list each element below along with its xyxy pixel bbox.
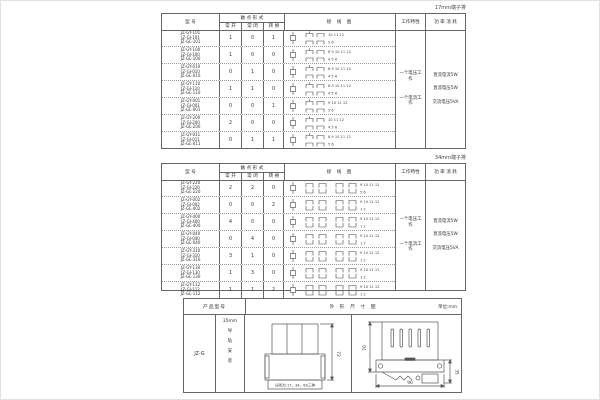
svg-text:9 10 11 12: 9 10 11 12 xyxy=(360,217,379,221)
model-number: JZ-GL-101 xyxy=(181,40,201,45)
rail-hook-box xyxy=(422,374,438,383)
normally-closed-count: 1 xyxy=(242,282,264,298)
power-note-dc-voltage: 直流电压5W xyxy=(427,232,465,237)
svg-text:8 9 10 11 12: 8 9 10 11 12 xyxy=(328,84,351,88)
model-number: JZ-GL-002 xyxy=(181,207,201,212)
svg-text:1 2: 1 2 xyxy=(360,208,366,212)
normally-open-count: 4 xyxy=(220,214,242,230)
col-header-changeover: 转 换 xyxy=(264,23,284,31)
wiring-diagram-cell: 9 10 11 121 2 xyxy=(284,282,395,298)
svg-text:8 9 10 11 12: 8 9 10 11 12 xyxy=(328,67,351,71)
wiring-diagram-svg: 8 9 10 11 124 5 6 xyxy=(286,64,394,80)
table-row: JZ-GY-310JZ-GJ-310JZ-GL-3103109 10 11 12… xyxy=(162,247,395,264)
col-header-model: 型 号 xyxy=(162,14,220,30)
svg-text:5 6: 5 6 xyxy=(328,41,334,45)
svg-text:1 2: 1 2 xyxy=(360,259,366,263)
changeover-count: 0 xyxy=(264,231,284,247)
table-row: JZ-GY-100JZ-GJ-100JZ-GL-1001008 9 10 11 … xyxy=(162,46,395,63)
side-depth-dim-label: 90 xyxy=(407,380,413,386)
power-note-dc-voltage: 直流电压5W xyxy=(427,86,465,91)
model-cell: JZ-GY-001JZ-GJ-001JZ-GL-001 xyxy=(162,98,220,114)
mounting-type-cell: 35mm导轨安装 xyxy=(216,315,245,393)
table-row: JZ-GY-220JZ-GJ-220JZ-GL-2202209 10 11 12… xyxy=(162,180,395,196)
col-header-changeover: 转 换 xyxy=(264,173,284,181)
wiring-diagram-cell: 9 10 11 121 2 xyxy=(284,248,395,264)
side-view-drawing: 70 90 35 xyxy=(352,315,461,393)
changeover-count: 0 xyxy=(264,214,284,230)
model-number: JZ-GL-100 xyxy=(181,57,201,62)
table-header: 型 号 触 点 形 式 常 开 常 闭 转 换 接 线 图 工作特性 功 率 消… xyxy=(162,164,465,181)
col-header-work-characteristic: 工作特性 xyxy=(396,164,426,180)
normally-closed-count: 1 xyxy=(242,248,264,264)
table-row: JZ-GY-400JZ-GJ-400JZ-GL-4004009 10 11 12… xyxy=(162,213,395,230)
normally-closed-count: 0 xyxy=(242,98,264,114)
model-number: JZ-GL-220 xyxy=(181,190,201,195)
table-body: JZ-GY-220JZ-GJ-220JZ-GL-2202209 10 11 12… xyxy=(162,180,395,290)
normally-open-count: 0 xyxy=(220,64,242,80)
power-consumption-cell: 直流电流5W 直流电压5W 交流电压5VA xyxy=(425,180,465,290)
normally-closed-count: 0 xyxy=(242,115,264,131)
svg-text:9 10 11 12: 9 10 11 12 xyxy=(360,285,379,289)
model-number: JZ-GL-001 xyxy=(181,108,201,113)
normally-open-count: 0 xyxy=(220,98,242,114)
col-header-contact-form: 触 点 形 式 xyxy=(220,14,284,23)
model-number: JZ-GL-040 xyxy=(181,241,201,246)
model-number: JZ-GL-400 xyxy=(181,224,201,229)
changeover-count: 0 xyxy=(264,81,284,97)
wiring-diagram-svg: 8 9 10 11 125 6 xyxy=(286,132,394,148)
normally-closed-count: 2 xyxy=(242,180,264,196)
wiring-diagram-cell: 8 9 10 11 124 5 6 xyxy=(284,81,395,97)
wiring-diagram-cell: 10 11 124 5 6 xyxy=(284,115,395,131)
wiring-diagram-svg: 9 10 11 121 2 xyxy=(286,214,394,230)
work-characteristic-cell: 一个电压工作 一个电流工作 xyxy=(395,30,425,148)
side-rail-dim-label: 35 xyxy=(455,369,460,375)
wiring-diagram-svg: 9 10 11 121 2 xyxy=(286,248,394,264)
model-number: JZ-GL-130 xyxy=(181,275,201,280)
model-cell: JZ-GY-310JZ-GJ-310JZ-GL-310 xyxy=(162,248,220,264)
model-cell: JZ-GY-110JZ-GJ-110JZ-GL-110 xyxy=(162,81,220,97)
model-cell: JZ-GY-040JZ-GJ-040JZ-GL-040 xyxy=(162,231,220,247)
svg-text:9 10 11 12: 9 10 11 12 xyxy=(360,200,379,204)
normally-closed-count: 0 xyxy=(242,47,264,63)
model-number: JZ-GL-310 xyxy=(181,258,201,263)
changeover-count: 0 xyxy=(264,248,284,264)
wiring-diagram-cell: 9 10 11 121 2 xyxy=(284,197,395,213)
svg-text:9 10 11 12: 9 10 11 12 xyxy=(360,183,379,187)
col-header-product-model: 产品型号 xyxy=(184,299,246,314)
spec-table-34mm: 型 号 触 点 形 式 常 开 常 闭 转 换 接 线 图 工作特性 功 率 消… xyxy=(161,163,466,291)
table-body: JZ-GY-101JZ-GJ-101JZ-GL-10110110 11 125 … xyxy=(162,30,395,148)
wiring-diagram-svg: 10 11 124 5 6 xyxy=(286,115,394,131)
power-consumption-cell: 直流电流5W 直流电压5W 交流电压5VA xyxy=(425,30,465,148)
dimension-table-header: 产品型号 外 形 尺 寸 图 单位:mm xyxy=(184,299,461,315)
table-row: JZ-GY-010JZ-GJ-010JZ-GL-0100108 9 10 11 … xyxy=(162,63,395,80)
changeover-count: 0 xyxy=(264,265,284,281)
dimension-table: 产品型号 外 形 尺 寸 图 单位:mm JZ-G 35mm导轨安装 xyxy=(183,298,462,393)
col-header-normally-closed: 常 闭 xyxy=(242,23,264,31)
power-note-ac-voltage: 交流电压5VA xyxy=(427,246,465,251)
changeover-count: 0 xyxy=(264,64,284,80)
table-row: JZ-GY-040JZ-GJ-040JZ-GL-0400409 10 11 12… xyxy=(162,230,395,247)
normally-open-count: 1 xyxy=(220,30,242,46)
outline-drawing-title: 外 形 尺 寸 图 xyxy=(329,303,377,310)
svg-text:5 6: 5 6 xyxy=(328,143,334,147)
mount-size-label: 35mm xyxy=(223,319,237,325)
table-row: JZ-GY-002JZ-GJ-002JZ-GL-0020029 10 11 12… xyxy=(162,196,395,213)
dimension-table-body: JZ-G 35mm导轨安装 xyxy=(184,315,461,393)
unit-label: 单位:mm xyxy=(438,304,457,310)
model-number: JZ-GL-011 xyxy=(181,142,201,147)
svg-text:4 5 6: 4 5 6 xyxy=(328,58,338,62)
normally-closed-count: 1 xyxy=(242,81,264,97)
svg-text:1 2: 1 2 xyxy=(360,242,366,246)
side-height-dim-label: 70 xyxy=(362,345,368,351)
normally-open-count: 0 xyxy=(220,132,242,148)
work-note-voltage: 一个电压工作 xyxy=(399,217,423,228)
normally-open-count: 1 xyxy=(220,265,242,281)
mount-vertical-char: 导 xyxy=(228,329,232,335)
col-header-wiring-diagram: 接 线 图 xyxy=(285,164,396,180)
wiring-diagram-svg: 10 11 125 6 xyxy=(286,30,394,46)
svg-text:8 9 10 11 12: 8 9 10 11 12 xyxy=(328,135,351,139)
work-characteristic-cell: 一个电压工作 一个电流工作 xyxy=(395,180,425,290)
table-row: JZ-GY-001JZ-GJ-001JZ-GL-0010019 10 11 12… xyxy=(162,97,395,114)
col-header-normally-open: 常 开 xyxy=(220,23,242,31)
datasheet-page: 17mm端子排 型 号 触 点 形 式 常 开 常 闭 转 换 接 线 图 工作… xyxy=(0,0,600,400)
model-cell: JZ-GY-002JZ-GJ-002JZ-GL-002 xyxy=(162,197,220,213)
svg-text:10 11 12: 10 11 12 xyxy=(328,33,344,37)
svg-text:4 5 6: 4 5 6 xyxy=(328,92,338,96)
wiring-diagram-cell: 8 9 10 11 124 5 6 xyxy=(284,47,395,63)
normally-closed-count: 1 xyxy=(242,132,264,148)
wiring-diagram-cell: 9 10 11 121 2 xyxy=(284,265,395,281)
changeover-count: 1 xyxy=(264,98,284,114)
normally-open-count: 2 xyxy=(220,115,242,131)
model-number: JZ-GL-010 xyxy=(181,74,201,79)
normally-closed-count: 3 xyxy=(242,265,264,281)
wiring-diagram-cell: 10 11 125 6 xyxy=(284,30,395,46)
changeover-count: 0 xyxy=(264,115,284,131)
wiring-diagram-cell: 9 10 11 121 2 xyxy=(284,231,395,247)
wiring-diagram-svg: 9 10 11 121 2 xyxy=(286,265,394,281)
svg-text:4 5 6: 4 5 6 xyxy=(328,126,338,130)
wiring-diagram-svg: 9 10 11 125 6 xyxy=(286,98,394,114)
svg-text:1 2: 1 2 xyxy=(360,225,366,229)
model-cell: JZ-GY-011JZ-GJ-011JZ-GL-011 xyxy=(162,132,220,148)
latch-squiggle xyxy=(382,372,412,380)
wiring-diagram-cell: 8 9 10 11 125 6 xyxy=(284,132,395,148)
model-cell: JZ-GY-010JZ-GJ-010JZ-GL-010 xyxy=(162,64,220,80)
table-row: JZ-GY-101JZ-GJ-101JZ-GL-10110110 11 125 … xyxy=(162,30,395,46)
model-cell: JZ-GY-101JZ-GJ-101JZ-GL-101 xyxy=(162,30,220,46)
changeover-count: 1 xyxy=(264,30,284,46)
terminal-strip-label-34mm: 34mm端子排 xyxy=(386,154,466,161)
table-header: 型 号 触 点 形 式 常 开 常 闭 转 换 接 线 图 工作特性 功 率 消… xyxy=(162,14,465,31)
product-model-cell: JZ-G xyxy=(184,315,216,393)
table-row: JZ-GY-130JZ-GJ-130JZ-GL-1301309 10 11 12… xyxy=(162,264,395,281)
model-cell: JZ-GY-112JZ-GJ-112JZ-GL-112 xyxy=(162,282,220,298)
power-note-ac-voltage: 交流电压5VA xyxy=(427,100,465,105)
col-header-power-consumption: 功 率 消 耗 xyxy=(426,164,465,180)
svg-text:4 5 6: 4 5 6 xyxy=(328,75,338,79)
changeover-count: 0 xyxy=(264,47,284,63)
normally-open-count: 3 xyxy=(220,248,242,264)
mount-vertical-char: 安 xyxy=(228,349,232,355)
changeover-count: 1 xyxy=(264,132,284,148)
table-row: JZ-GY-112JZ-GJ-112JZ-GL-1121129 10 11 12… xyxy=(162,281,395,298)
normally-closed-count: 4 xyxy=(242,231,264,247)
col-group-contact-form: 触 点 形 式 常 开 常 闭 转 换 xyxy=(220,14,285,30)
normally-closed-count: 0 xyxy=(242,214,264,230)
normally-closed-count: 0 xyxy=(242,197,264,213)
svg-text:1 2: 1 2 xyxy=(360,276,366,280)
wiring-diagram-cell: 8 9 10 11 124 5 6 xyxy=(284,64,395,80)
normally-closed-count: 1 xyxy=(242,64,264,80)
mount-vertical-char: 装 xyxy=(228,359,232,365)
wiring-diagram-svg: 9 10 11 121 2 xyxy=(286,231,394,247)
din-rail-clamp xyxy=(376,360,444,372)
changeover-count: 2 xyxy=(264,197,284,213)
wiring-diagram-svg: 8 9 10 11 124 5 6 xyxy=(286,47,394,63)
mount-vertical-char: 轨 xyxy=(228,339,232,345)
col-header-outline-drawing: 外 形 尺 寸 图 单位:mm xyxy=(246,299,461,314)
col-header-contact-form: 触 点 形 式 xyxy=(220,164,284,173)
model-cell: JZ-GY-220JZ-GJ-220JZ-GL-220 xyxy=(162,180,220,196)
svg-text:9 10 11 12: 9 10 11 12 xyxy=(360,268,379,272)
changeover-count: 2 xyxy=(264,282,284,298)
terminal-strip-label-17mm: 17mm端子排 xyxy=(386,4,466,11)
svg-text:5 6: 5 6 xyxy=(360,191,366,195)
normally-open-count: 1 xyxy=(220,47,242,63)
svg-text:1 2: 1 2 xyxy=(360,293,366,297)
col-header-power-consumption: 功 率 消 耗 xyxy=(426,14,465,30)
svg-text:9 10 11 12: 9 10 11 12 xyxy=(360,251,379,255)
work-note-current: 一个电流工作 xyxy=(399,242,423,253)
normally-open-count: 0 xyxy=(220,197,242,213)
wiring-diagram-cell: 9 10 11 125 6 xyxy=(284,180,395,196)
model-cell: JZ-GY-400JZ-GJ-400JZ-GL-400 xyxy=(162,214,220,230)
wiring-diagram-svg: 9 10 11 121 2 xyxy=(286,282,394,298)
wiring-diagram-cell: 9 10 11 121 2 xyxy=(284,214,395,230)
wiring-diagram-svg: 9 10 11 121 2 xyxy=(286,197,394,213)
col-header-wiring-diagram: 接 线 图 xyxy=(285,14,396,30)
svg-text:10 11 12: 10 11 12 xyxy=(328,118,344,122)
wiring-diagram-cell: 9 10 11 125 6 xyxy=(284,98,395,114)
col-group-contact-form: 触 点 形 式 常 开 常 闭 转 换 xyxy=(220,164,285,180)
svg-text:5 6: 5 6 xyxy=(328,109,334,113)
normally-open-count: 1 xyxy=(220,282,242,298)
work-note-voltage: 一个电压工作 xyxy=(399,71,423,82)
table-row: JZ-GY-011JZ-GJ-011JZ-GL-0110118 9 10 11 … xyxy=(162,131,395,148)
model-number: JZ-GL-110 xyxy=(181,91,201,96)
front-view-drawing: 72 分别为:17、34、60三种 xyxy=(245,315,352,393)
model-number: JZ-GL-112 xyxy=(181,292,201,297)
spec-table-17mm: 型 号 触 点 形 式 常 开 常 闭 转 换 接 线 图 工作特性 功 率 消… xyxy=(161,13,466,149)
normally-open-count: 2 xyxy=(220,180,242,196)
normally-open-count: 1 xyxy=(220,81,242,97)
model-number: JZ-GL-200 xyxy=(181,125,201,130)
power-note-dc-current: 直流电流5W xyxy=(427,219,465,224)
wiring-diagram-svg: 9 10 11 125 6 xyxy=(286,180,394,196)
normally-closed-count: 0 xyxy=(242,30,264,46)
front-base-box xyxy=(265,354,325,380)
model-cell: JZ-GY-100JZ-GJ-100JZ-GL-100 xyxy=(162,47,220,63)
wiring-diagram-svg: 8 9 10 11 124 5 6 xyxy=(286,81,394,97)
front-height-dim-label: 72 xyxy=(335,351,341,357)
col-header-normally-closed: 常 闭 xyxy=(242,173,264,181)
normally-open-count: 0 xyxy=(220,231,242,247)
front-upper-box xyxy=(272,324,318,354)
changeover-count: 0 xyxy=(264,180,284,196)
col-header-normally-open: 常 开 xyxy=(220,173,242,181)
model-cell: JZ-GY-130JZ-GJ-130JZ-GL-130 xyxy=(162,265,220,281)
work-note-current: 一个电流工作 xyxy=(399,96,423,107)
front-caption: 分别为:17、34、60三种 xyxy=(274,383,314,388)
svg-text:9 10 11 12: 9 10 11 12 xyxy=(360,234,379,238)
power-note-dc-current: 直流电流5W xyxy=(427,73,465,78)
table-row: JZ-GY-200JZ-GJ-200JZ-GL-20020010 11 124 … xyxy=(162,114,395,131)
svg-text:8 9 10 11 12: 8 9 10 11 12 xyxy=(328,50,351,54)
svg-text:9 10 11 12: 9 10 11 12 xyxy=(328,101,347,105)
model-cell: JZ-GY-200JZ-GJ-200JZ-GL-200 xyxy=(162,115,220,131)
col-header-work-characteristic: 工作特性 xyxy=(396,14,426,30)
table-row: JZ-GY-110JZ-GJ-110JZ-GL-1101108 9 10 11 … xyxy=(162,80,395,97)
col-header-model: 型 号 xyxy=(162,164,220,180)
